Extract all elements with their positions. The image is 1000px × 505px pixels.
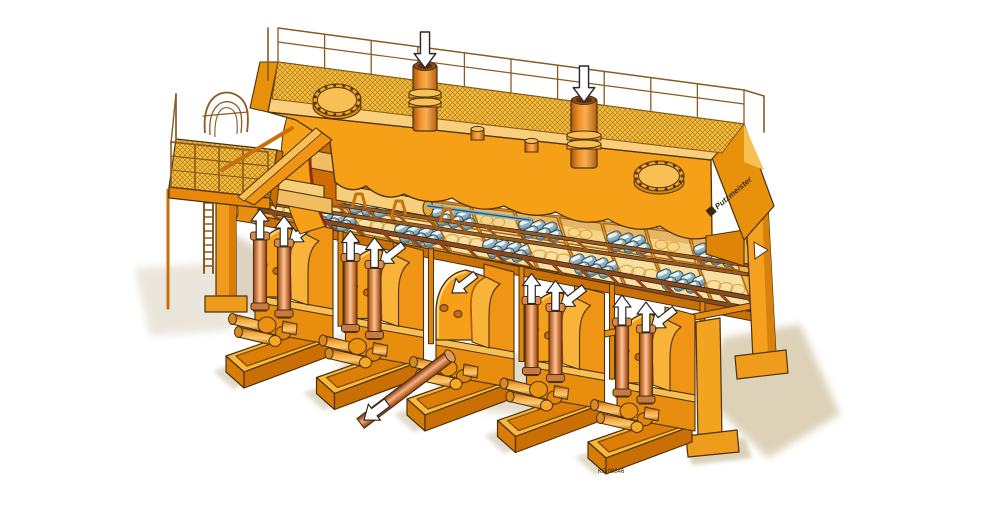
svg-text:KS 09846: KS 09846	[598, 469, 625, 475]
